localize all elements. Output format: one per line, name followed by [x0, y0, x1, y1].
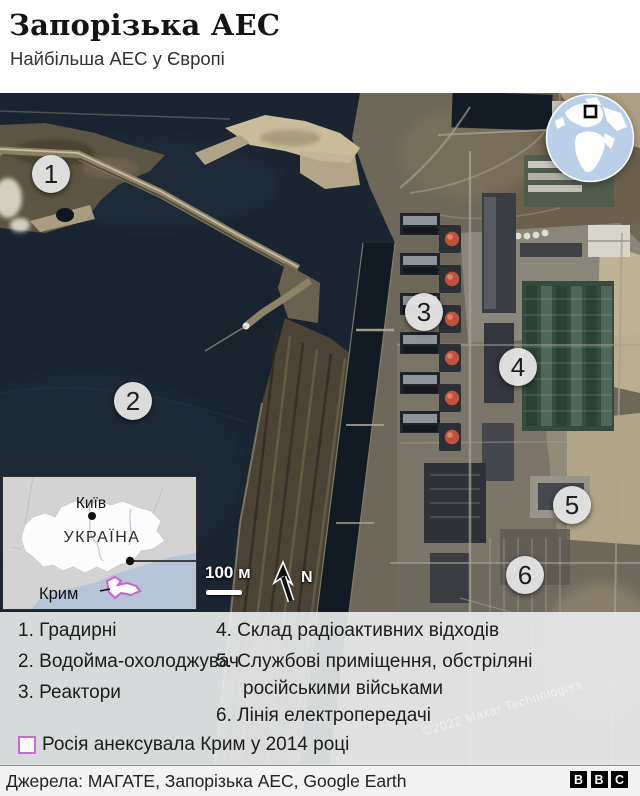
legend-item-5: 5. Службові приміщення, обстріляні росій…: [216, 648, 545, 702]
legend-item-4: 4. Склад радіоактивних відходів: [216, 620, 499, 642]
legend-1-number: 1.: [18, 620, 34, 641]
marker-2-number: 2: [126, 386, 140, 417]
ukraine-inset-map: Київ УКРАЇНА Крим: [2, 476, 197, 610]
legend-4-label: Склад радіоактивних відходів: [237, 620, 499, 641]
map-marker-2[interactable]: 2: [114, 382, 152, 420]
bbc-logo-square-b2: B: [591, 771, 608, 788]
legend-1-label: Градирні: [39, 620, 116, 641]
marker-1-number: 1: [44, 159, 58, 190]
crimea-annexed-swatch: [18, 736, 36, 754]
inset-city-label: Київ: [76, 495, 106, 512]
scale-label: 100 м: [205, 563, 251, 583]
legend-3-number: 3.: [18, 682, 34, 703]
legend-6-number: 6.: [216, 705, 232, 726]
legend-3-label: Реактори: [39, 682, 121, 703]
scale-bar: [206, 590, 242, 595]
legend-4-number: 4.: [216, 620, 232, 641]
legend-5-number: 5.: [216, 651, 232, 672]
bbc-logo-square-b1: B: [570, 771, 587, 788]
inset-country-label: УКРАЇНА: [64, 528, 141, 546]
marker-3-number: 3: [417, 297, 431, 328]
legend-6-label: Лінія електропередачі: [237, 705, 431, 726]
legend-5-label: Службові приміщення, обстріляні російськ…: [237, 651, 532, 699]
map-marker-6[interactable]: 6: [506, 556, 544, 594]
source-credit: Джерела: МАГАТЕ, Запорізька АЕС, Google …: [6, 771, 407, 792]
legend-2-number: 2.: [18, 651, 34, 672]
map-marker-1[interactable]: 1: [32, 155, 70, 193]
plant-dot: [126, 557, 134, 565]
legend-item-6: 6. Лінія електропередачі: [216, 705, 431, 727]
inset-region-label: Крим: [39, 585, 78, 603]
legend-item-3: 3. Реактори: [18, 682, 121, 704]
globe-locator-icon: [545, 93, 635, 183]
page-title: Запорізька АЕС: [9, 8, 280, 42]
kyiv-dot: [88, 512, 96, 520]
crimea-annexed-note: Росія анексувала Крим у 2014 році: [42, 734, 349, 756]
legend-2-label: Водойма-охолоджувач: [39, 651, 239, 672]
marker-4-number: 4: [511, 352, 525, 383]
marker-6-number: 6: [518, 560, 532, 591]
bbc-logo-square-c: C: [611, 771, 628, 788]
legend-item-2: 2. Водойма-охолоджувач: [18, 651, 239, 673]
infographic: Запорізька АЕС Найбільша АЕС у Європі: [0, 0, 640, 796]
page-subtitle: Найбільша АЕС у Європі: [10, 48, 225, 70]
map-marker-3[interactable]: 3: [405, 293, 443, 331]
footer: Джерела: МАГАТЕ, Запорізька АЕС, Google …: [0, 765, 640, 796]
legend-item-1: 1. Градирні: [18, 620, 116, 642]
north-label: N: [301, 569, 313, 587]
map-marker-5[interactable]: 5: [553, 486, 591, 524]
bbc-logo: B B C: [570, 771, 628, 788]
marker-5-number: 5: [565, 490, 579, 521]
satellite-map: 1 2 3 4 5 6 100 м N: [0, 93, 640, 765]
map-marker-4[interactable]: 4: [499, 348, 537, 386]
